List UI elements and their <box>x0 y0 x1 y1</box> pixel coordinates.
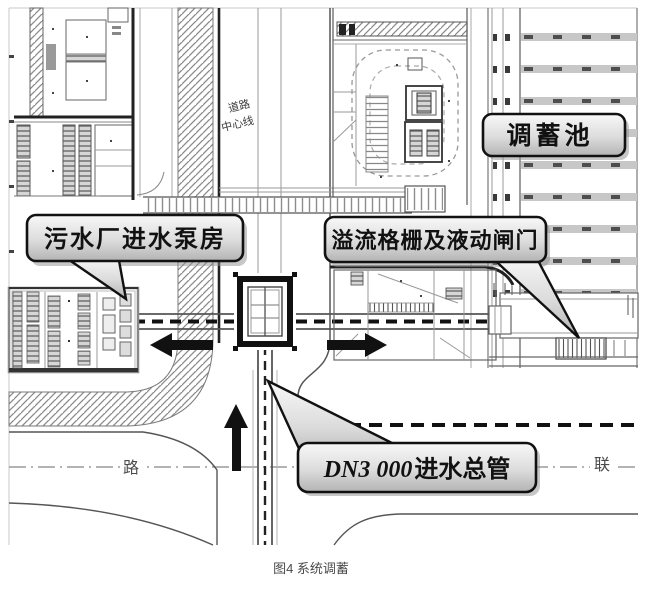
pump-house-building <box>9 288 138 372</box>
callout-pump-house-text: 污水厂进水泵房 <box>44 225 226 253</box>
road-name-right: 联 <box>590 452 614 474</box>
road-name-left: 路 <box>120 455 143 477</box>
north-block-stub <box>405 186 445 212</box>
callout-storage-tank-text: 调蓄池 <box>506 122 593 150</box>
svg-text:联: 联 <box>594 456 610 474</box>
figure-system-regulation: 道路 中心线 路 联 污水厂进水泵房 调蓄池 溢流格栅及液动闸门 DN3 000… <box>0 0 646 589</box>
callout-overflow-gate-text: 溢流格栅及液动闸门 <box>331 228 538 253</box>
callout-storage-tank: 调蓄池 <box>483 114 629 160</box>
svg-text:路: 路 <box>123 459 139 477</box>
overflow-grille <box>556 338 606 359</box>
figure-caption: 图4 系统调蓄 <box>273 561 349 576</box>
callout-inlet-main-text: DN3 000进水总管 <box>323 455 511 483</box>
crosswalk <box>143 197 412 213</box>
junction-chamber <box>233 272 297 351</box>
